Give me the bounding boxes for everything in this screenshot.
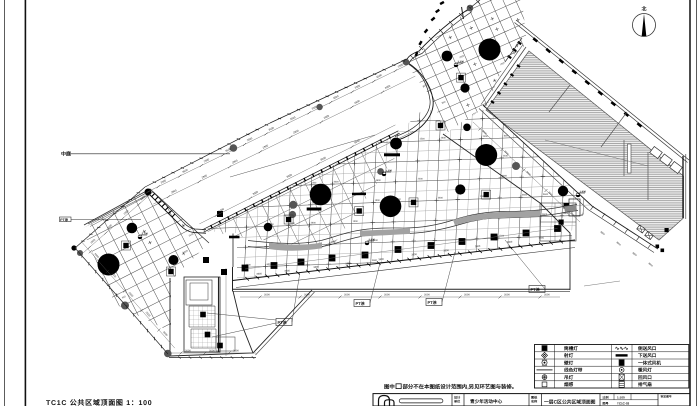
svg-text:名称: 名称 [531,400,538,404]
svg-text:PT涂: PT涂 [278,320,288,325]
svg-text:1:100: 1:100 [617,396,625,400]
svg-text:3600: 3600 [378,258,384,262]
svg-text:筒槽灯: 筒槽灯 [564,346,578,351]
svg-text:1500: 1500 [353,220,359,223]
svg-text:3600: 3600 [543,193,549,196]
svg-text:3500: 3500 [424,294,430,297]
svg-text:3600: 3600 [284,269,290,273]
svg-text:线色灯带: 线色灯带 [564,368,583,373]
svg-text:射灯: 射灯 [563,353,574,358]
svg-text:3600: 3600 [539,236,545,240]
svg-text:回风口: 回风口 [638,375,652,380]
svg-text:3600: 3600 [475,245,481,249]
svg-text:烟感: 烟感 [564,382,574,387]
svg-text:3500: 3500 [464,294,470,297]
svg-text:PT涂: PT涂 [531,287,541,292]
svg-text:侧送风口: 侧送风口 [638,346,657,351]
svg-text:PT涂: PT涂 [356,301,366,306]
svg-text:PT涂: PT涂 [60,218,68,222]
svg-text:3600: 3600 [443,249,449,253]
svg-text:2.800: 2.800 [369,238,376,241]
svg-text:吊灯: 吊灯 [564,375,574,380]
svg-text:北: 北 [641,6,646,13]
svg-text:TC1C-03: TC1C-03 [617,402,630,406]
svg-text:3500: 3500 [233,350,239,353]
svg-text:PT涂: PT涂 [428,300,438,305]
svg-text:3600: 3600 [411,253,417,257]
svg-text:一体式风机: 一体式风机 [638,360,661,365]
svg-text:3500: 3500 [209,350,215,353]
svg-text:一层C区公共区域顶面图: 一层C区公共区域顶面图 [544,398,596,405]
svg-text:单位: 单位 [454,400,461,404]
svg-text:审定图号: 审定图号 [661,395,672,399]
svg-text:2400: 2400 [483,135,489,138]
svg-text:3600: 3600 [441,137,447,140]
svg-text:壁灯: 壁灯 [563,360,574,365]
svg-text:3500: 3500 [185,350,191,353]
svg-text:∿∿∿: ∿∿∿ [615,346,629,352]
svg-text:3600: 3600 [334,181,340,184]
svg-text:3600: 3600 [345,262,351,266]
svg-text:3500: 3500 [384,294,390,297]
svg-text:3500: 3500 [304,294,310,297]
svg-text:1500: 1500 [375,199,381,202]
svg-text:比例: 比例 [603,396,609,400]
svg-text:3600: 3600 [256,272,262,276]
svg-text:3500: 3500 [264,294,270,297]
svg-text:下送风口: 下送风口 [638,353,657,358]
svg-text:3.200: 3.200 [458,60,465,63]
svg-text:3500: 3500 [504,294,510,297]
svg-text:1.900: 1.900 [580,190,587,193]
svg-text:2400: 2400 [418,177,424,180]
svg-text:3600: 3600 [311,221,317,224]
svg-text:3500: 3500 [344,294,350,297]
svg-text:3600: 3600 [313,265,319,269]
svg-text:青少年活动中心: 青少年活动中心 [470,399,503,404]
svg-text:3.700: 3.700 [142,232,149,235]
svg-text:图中: 图中 [384,384,395,391]
svg-text:部分不在本图纸设计范围内,另见环艺图与装修。: 部分不在本图纸设计范围内,另见环艺图与装修。 [403,384,518,391]
svg-text:3.200: 3.200 [386,169,393,172]
svg-text:图号: 图号 [603,402,609,406]
svg-text:暖风灯: 暖风灯 [638,368,652,373]
svg-text:排气扇: 排气扇 [638,382,652,387]
svg-text:1500: 1500 [290,222,296,225]
svg-text:3600: 3600 [438,197,444,200]
svg-text:1500: 1500 [420,137,426,140]
svg-text:TC1C 公共区域顶面图 1：100: TC1C 公共区域顶面图 1：100 [46,398,152,406]
svg-text:3600: 3600 [376,179,382,182]
svg-text:3600: 3600 [507,240,513,244]
svg-text:2400: 2400 [503,154,509,157]
svg-text:3500: 3500 [544,294,550,297]
